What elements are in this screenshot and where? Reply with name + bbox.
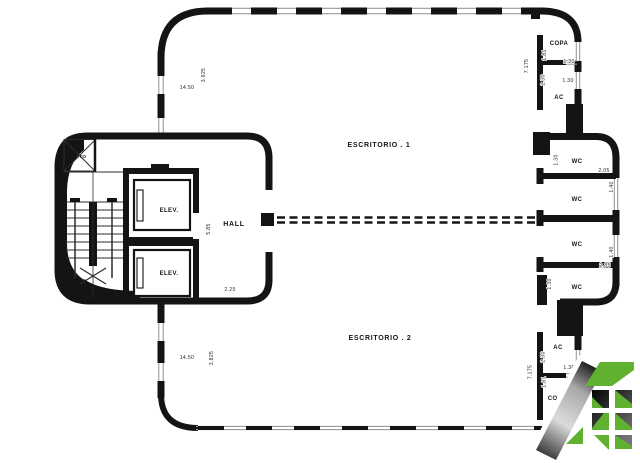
dim-copa-top-window: 1.30 xyxy=(563,59,574,65)
dim-wc4-door: 1.30 xyxy=(547,278,553,289)
room-label-elevator-2: ELEV. xyxy=(160,271,179,277)
dim-top-width: 14.50 xyxy=(180,85,194,91)
room-label-escritorio-1: ESCRITORIO . 1 xyxy=(348,142,411,149)
dim-copa-bottom-depth: 1.81 xyxy=(542,376,548,387)
dim-top-height: 3.925 xyxy=(201,68,207,82)
wall-stub xyxy=(531,10,540,19)
dim-ac-bottom-depth: 2.30 xyxy=(541,351,547,362)
dim-bottom-width: 14.50 xyxy=(180,355,194,361)
room-label-ac-bottom: AC xyxy=(553,345,563,351)
room-label-ac-top: AC xyxy=(554,95,564,101)
elevator-door-1 xyxy=(137,190,143,221)
room-label-duct: DUTO xyxy=(72,154,86,160)
outer-walls xyxy=(159,8,578,429)
room-label-hall: HALL xyxy=(223,221,244,228)
dim-wc1-door: 1.30 xyxy=(554,154,560,165)
dim-wc3-width: 2.85 xyxy=(599,263,610,269)
dim-right-bottom-total: 7.175 xyxy=(528,365,534,379)
room-label-elevator-1: ELEV. xyxy=(160,208,179,214)
elevator-door-2 xyxy=(137,258,143,288)
dim-hall-depth: 2.25 xyxy=(224,287,235,293)
dim-wc3-window: 1.40 xyxy=(609,246,615,257)
floor-plan-page: ESCRITORIO . 1 ESCRITORIO . 2 HALL ELEV.… xyxy=(0,0,640,463)
dim-hall-height: 5.85 xyxy=(206,223,212,234)
floor-plan-drawing: ESCRITORIO . 1 ESCRITORIO . 2 HALL ELEV.… xyxy=(0,0,640,463)
room-label-wc-2: WC xyxy=(572,197,583,203)
duct-shaft-top xyxy=(566,104,583,133)
room-label-wc-1: WC xyxy=(572,159,583,165)
room-label-escritorio-2: ESCRITORIO . 2 xyxy=(349,335,412,342)
dim-wc1-width: 2.05 xyxy=(598,168,609,174)
dim-bottom-height: 3.825 xyxy=(209,351,215,365)
dim-ac-top-window: 1.30 xyxy=(562,78,573,84)
room-label-wc-4: WC xyxy=(572,285,583,291)
room-label-copa-top: COPA xyxy=(550,41,569,47)
partition-dashed-line xyxy=(261,213,540,226)
dim-copa-top-depth: 1.81 xyxy=(542,49,548,60)
dim-wc2-window: 1.40 xyxy=(609,181,615,192)
dim-right-top-total: 7.175 xyxy=(524,59,530,73)
room-label-wc-3: WC xyxy=(572,242,583,248)
elevator-shaft xyxy=(123,164,199,299)
elevator-cab-1 xyxy=(134,180,190,230)
dim-ac-top-depth: 2.30 xyxy=(541,74,547,85)
brand-logo xyxy=(529,352,640,463)
